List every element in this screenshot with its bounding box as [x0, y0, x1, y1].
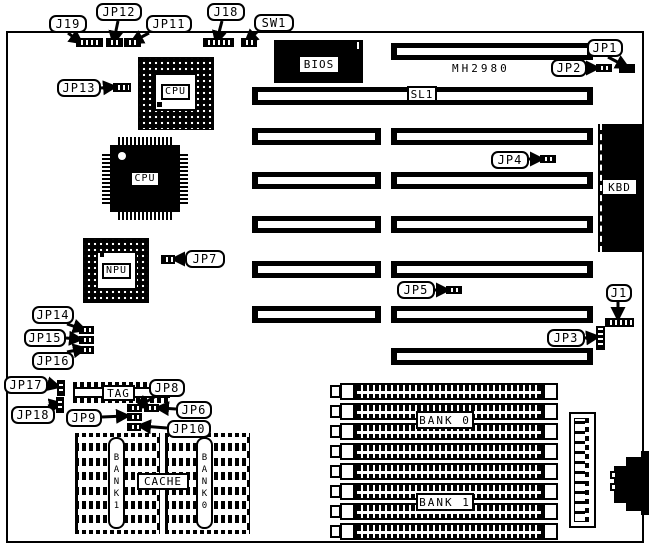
callout-jp12: JP12: [96, 3, 142, 21]
jumper-j18: [203, 38, 234, 47]
jumper-sw1: [241, 38, 257, 47]
jumper-jp6: [144, 404, 159, 412]
jumper-jp11: [124, 38, 141, 47]
callout-j1: J1: [606, 284, 632, 302]
callout-j18: J18: [207, 3, 245, 21]
jumper-jp5: [446, 286, 462, 294]
callout-jp14: JP14: [32, 306, 74, 324]
jumper-jp3: [596, 326, 605, 350]
callout-jp5: JP5: [397, 281, 435, 299]
jumper-jp1: [619, 64, 635, 73]
jumper-jp8: [127, 404, 142, 412]
jumper-jp9: [127, 413, 142, 421]
callout-jp9: JP9: [66, 409, 102, 427]
jumper-jp12: [106, 38, 123, 47]
callout-jp2: JP2: [551, 59, 587, 77]
jumper-jp18: [56, 397, 64, 413]
callout-jp18: JP18: [11, 406, 55, 424]
callout-jp3: JP3: [547, 329, 585, 347]
callout-jp13: JP13: [57, 79, 101, 97]
callout-jp1: JP1: [587, 39, 623, 57]
jumper-jp7: [161, 255, 175, 264]
jumper-jp4: [540, 155, 556, 163]
callout-jp16: JP16: [32, 352, 74, 370]
jumper-j19: [76, 38, 103, 47]
jumper-jp13: [113, 83, 131, 92]
jumper-jp10: [127, 423, 141, 431]
jumper-jp15: [79, 336, 94, 344]
jumper-jp17: [57, 380, 65, 396]
callout-jp8: JP8: [149, 379, 185, 397]
motherboard-diagram: SL1 BIOS MH2980 CPU CPU NPU KBD: [0, 0, 649, 551]
callout-jp4: JP4: [491, 151, 529, 169]
jumper-j1: [605, 318, 634, 327]
callout-jp11: JP11: [146, 15, 192, 33]
callout-jp17: JP17: [4, 376, 48, 394]
callout-jp10: JP10: [167, 420, 211, 438]
jumper-jp14: [79, 326, 94, 334]
callout-jp6: JP6: [176, 401, 212, 419]
callout-jp15: JP15: [24, 329, 66, 347]
jumper-jp16: [79, 346, 94, 354]
callout-sw1: SW1: [254, 14, 294, 32]
jumper-jp2: [596, 64, 612, 72]
callout-jp7: JP7: [185, 250, 225, 268]
callout-j19: J19: [49, 15, 87, 33]
